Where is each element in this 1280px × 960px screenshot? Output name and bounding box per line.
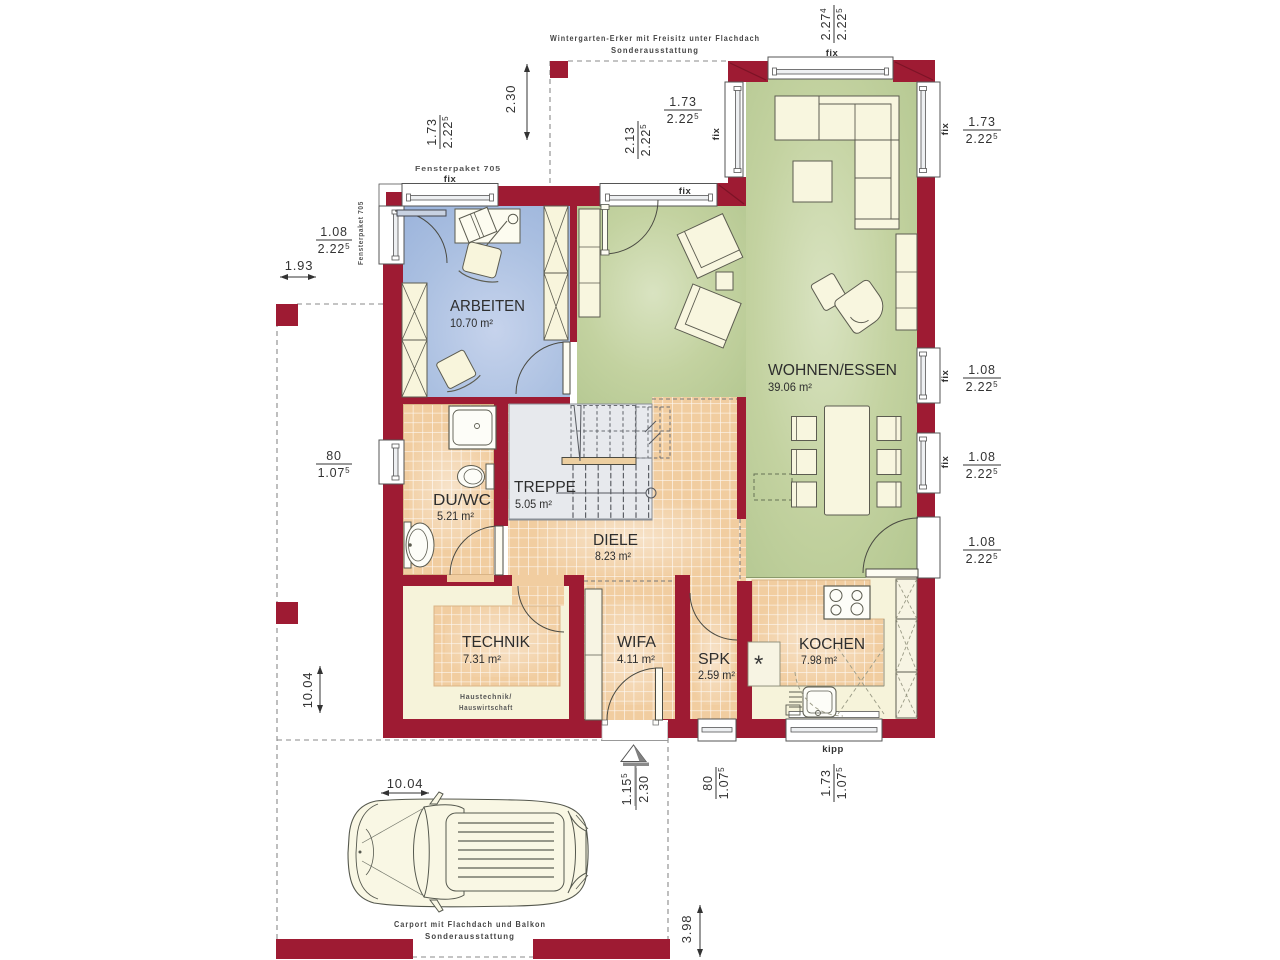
svg-text:Sonderausstattung: Sonderausstattung (611, 45, 699, 55)
svg-text:10.04: 10.04 (387, 776, 424, 791)
svg-text:SPK: SPK (698, 651, 731, 668)
svg-text:Carport mit Flachdach und Balk: Carport mit Flachdach und Balkon (394, 919, 546, 929)
svg-text:8.23 m²: 8.23 m² (595, 551, 631, 563)
svg-text:80: 80 (701, 775, 715, 791)
svg-text:Wintergarten-Erker mit Freisit: Wintergarten-Erker mit Freisitz unter Fl… (550, 33, 760, 43)
svg-text:1.08: 1.08 (968, 363, 996, 377)
svg-text:WIFA: WIFA (617, 634, 657, 651)
svg-text:7.31 m²: 7.31 m² (463, 654, 501, 666)
svg-text:fix: fix (940, 369, 951, 382)
svg-text:*: * (754, 651, 763, 678)
svg-text:7.98 m²: 7.98 m² (801, 655, 837, 667)
svg-text:Fensterpaket 705: Fensterpaket 705 (415, 164, 501, 173)
svg-text:1.93: 1.93 (285, 258, 314, 273)
svg-text:1.73: 1.73 (669, 95, 697, 109)
svg-text:DIELE: DIELE (593, 532, 638, 549)
svg-text:1.08: 1.08 (968, 535, 996, 549)
svg-text:kipp: kipp (822, 744, 844, 755)
svg-text:fix: fix (940, 122, 951, 135)
svg-text:80: 80 (326, 449, 342, 463)
svg-text:fix: fix (444, 174, 457, 185)
svg-text:Sonderausstattung: Sonderausstattung (425, 931, 515, 941)
svg-text:1.08: 1.08 (320, 225, 348, 239)
svg-text:ARBEITEN: ARBEITEN (450, 298, 525, 315)
svg-text:TREPPE: TREPPE (514, 479, 576, 496)
svg-text:fix: fix (940, 455, 951, 468)
svg-text:1.73: 1.73 (819, 769, 833, 797)
svg-text:2.30: 2.30 (503, 85, 518, 114)
svg-text:39.06 m²: 39.06 m² (768, 382, 812, 394)
svg-text:10.04: 10.04 (300, 672, 315, 709)
svg-text:fix: fix (679, 186, 692, 197)
svg-text:4.11 m²: 4.11 m² (617, 654, 655, 666)
svg-text:5.21 m²: 5.21 m² (437, 511, 474, 523)
svg-text:10.70 m²: 10.70 m² (450, 318, 493, 330)
svg-text:Fensterpaket 705: Fensterpaket 705 (356, 201, 365, 265)
svg-text:2.13: 2.13 (623, 126, 637, 154)
svg-text:TECHNIK: TECHNIK (462, 634, 531, 651)
svg-text:1.08: 1.08 (968, 450, 996, 464)
svg-text:Haustechnik/: Haustechnik/ (460, 692, 512, 701)
svg-text:1.73: 1.73 (968, 115, 996, 129)
svg-text:WOHNEN/ESSEN: WOHNEN/ESSEN (768, 362, 897, 379)
svg-text:fix: fix (711, 127, 722, 140)
svg-text:3.98: 3.98 (679, 915, 694, 944)
svg-text:DU/WC: DU/WC (433, 492, 491, 509)
svg-text:1.73: 1.73 (425, 118, 439, 146)
svg-text:2.59 m²: 2.59 m² (698, 670, 735, 682)
svg-text:KOCHEN: KOCHEN (799, 636, 865, 653)
svg-text:Hauswirtschaft: Hauswirtschaft (459, 703, 513, 712)
svg-text:fix: fix (826, 48, 839, 59)
svg-text:2.30: 2.30 (637, 775, 651, 803)
svg-text:5.05 m²: 5.05 m² (515, 499, 552, 511)
